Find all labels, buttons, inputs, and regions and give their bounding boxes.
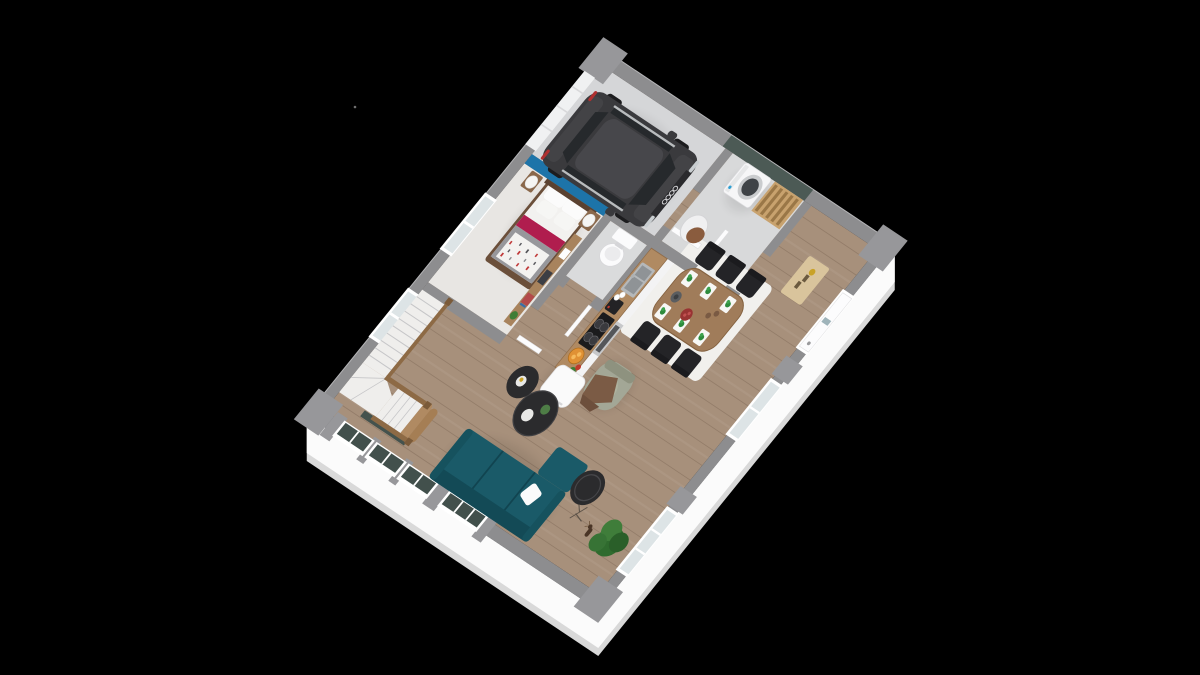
dust-speck [354,106,357,109]
floorplan-svg [0,0,1200,675]
floorplan-canvas [0,0,1200,675]
